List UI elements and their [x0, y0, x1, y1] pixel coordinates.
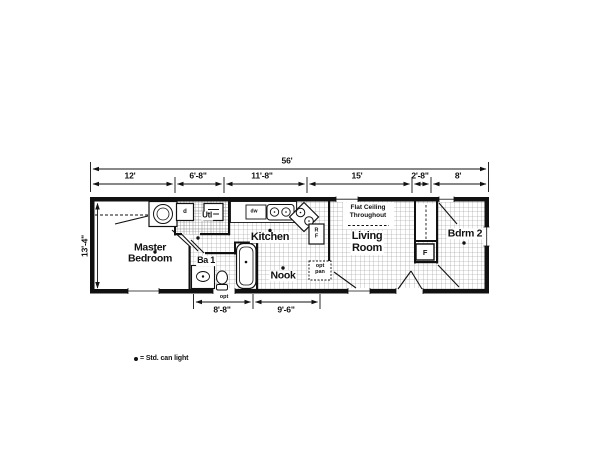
room-label-bedroom2: Bdrm 2 [447, 228, 483, 239]
can-light-dot [462, 241, 465, 244]
can-light-dot [196, 236, 199, 239]
dim-segment-12ft: 12' [125, 171, 136, 180]
furnace-label: F [423, 248, 427, 256]
dim-bottom-9-6: 9'-6" [277, 305, 294, 314]
toilet-icon [217, 271, 228, 290]
dryer-label: d [183, 209, 187, 215]
legend-text: = Std. can light [140, 355, 188, 362]
refrigerator-label: RF [313, 229, 320, 240]
dim-segment-15ft: 15' [352, 171, 363, 180]
window-top-living [336, 197, 358, 203]
can-light-legend-icon [134, 357, 138, 361]
tub-icon [237, 244, 257, 289]
legend-can-light: = Std. can light [134, 355, 188, 362]
room-label-master-bedroom: Master Bedroom [128, 243, 172, 266]
dim-segment-8ft: 8' [455, 171, 461, 180]
dim-bottom-8-8: 8'-8" [213, 305, 230, 314]
dim-segment-6-8: 6'-8" [189, 171, 206, 180]
shower-icon [149, 202, 177, 227]
room-label-bath1: Ba 1 [196, 256, 216, 266]
room-label-living-room: Living Room [351, 231, 384, 255]
opening-entry-door [396, 288, 423, 294]
dim-height: 13'-4" [80, 235, 89, 257]
floor-plan-page: 56' 12' 6'-8" 11'-8" 15' 2'-8" 8' 13'-4"… [0, 0, 600, 463]
floor-plan-drawing [0, 0, 600, 463]
dim-segment-11-8: 11'-8" [251, 171, 272, 180]
dim-segment-2-8: 2'-8" [411, 171, 428, 180]
closet-interior [416, 204, 436, 241]
optional-pantry-label: opt pan [315, 264, 325, 276]
room-label-utility: Utl [201, 212, 213, 221]
window-top-bedroom2 [439, 197, 454, 203]
window-right-bedroom2 [484, 227, 490, 246]
window-bottom-nook [348, 288, 370, 294]
flat-ceiling-note: Flat Ceiling Throughout [350, 204, 386, 220]
vanity-icon [192, 266, 215, 289]
optional-door-label: opt [220, 295, 229, 301]
dim-overall-width: 56' [282, 156, 293, 165]
window-bottom-master [128, 288, 159, 294]
room-label-kitchen: Kitchen [250, 232, 290, 244]
dishwasher-label: dw [251, 209, 258, 214]
room-label-nook: Nook [269, 270, 296, 281]
